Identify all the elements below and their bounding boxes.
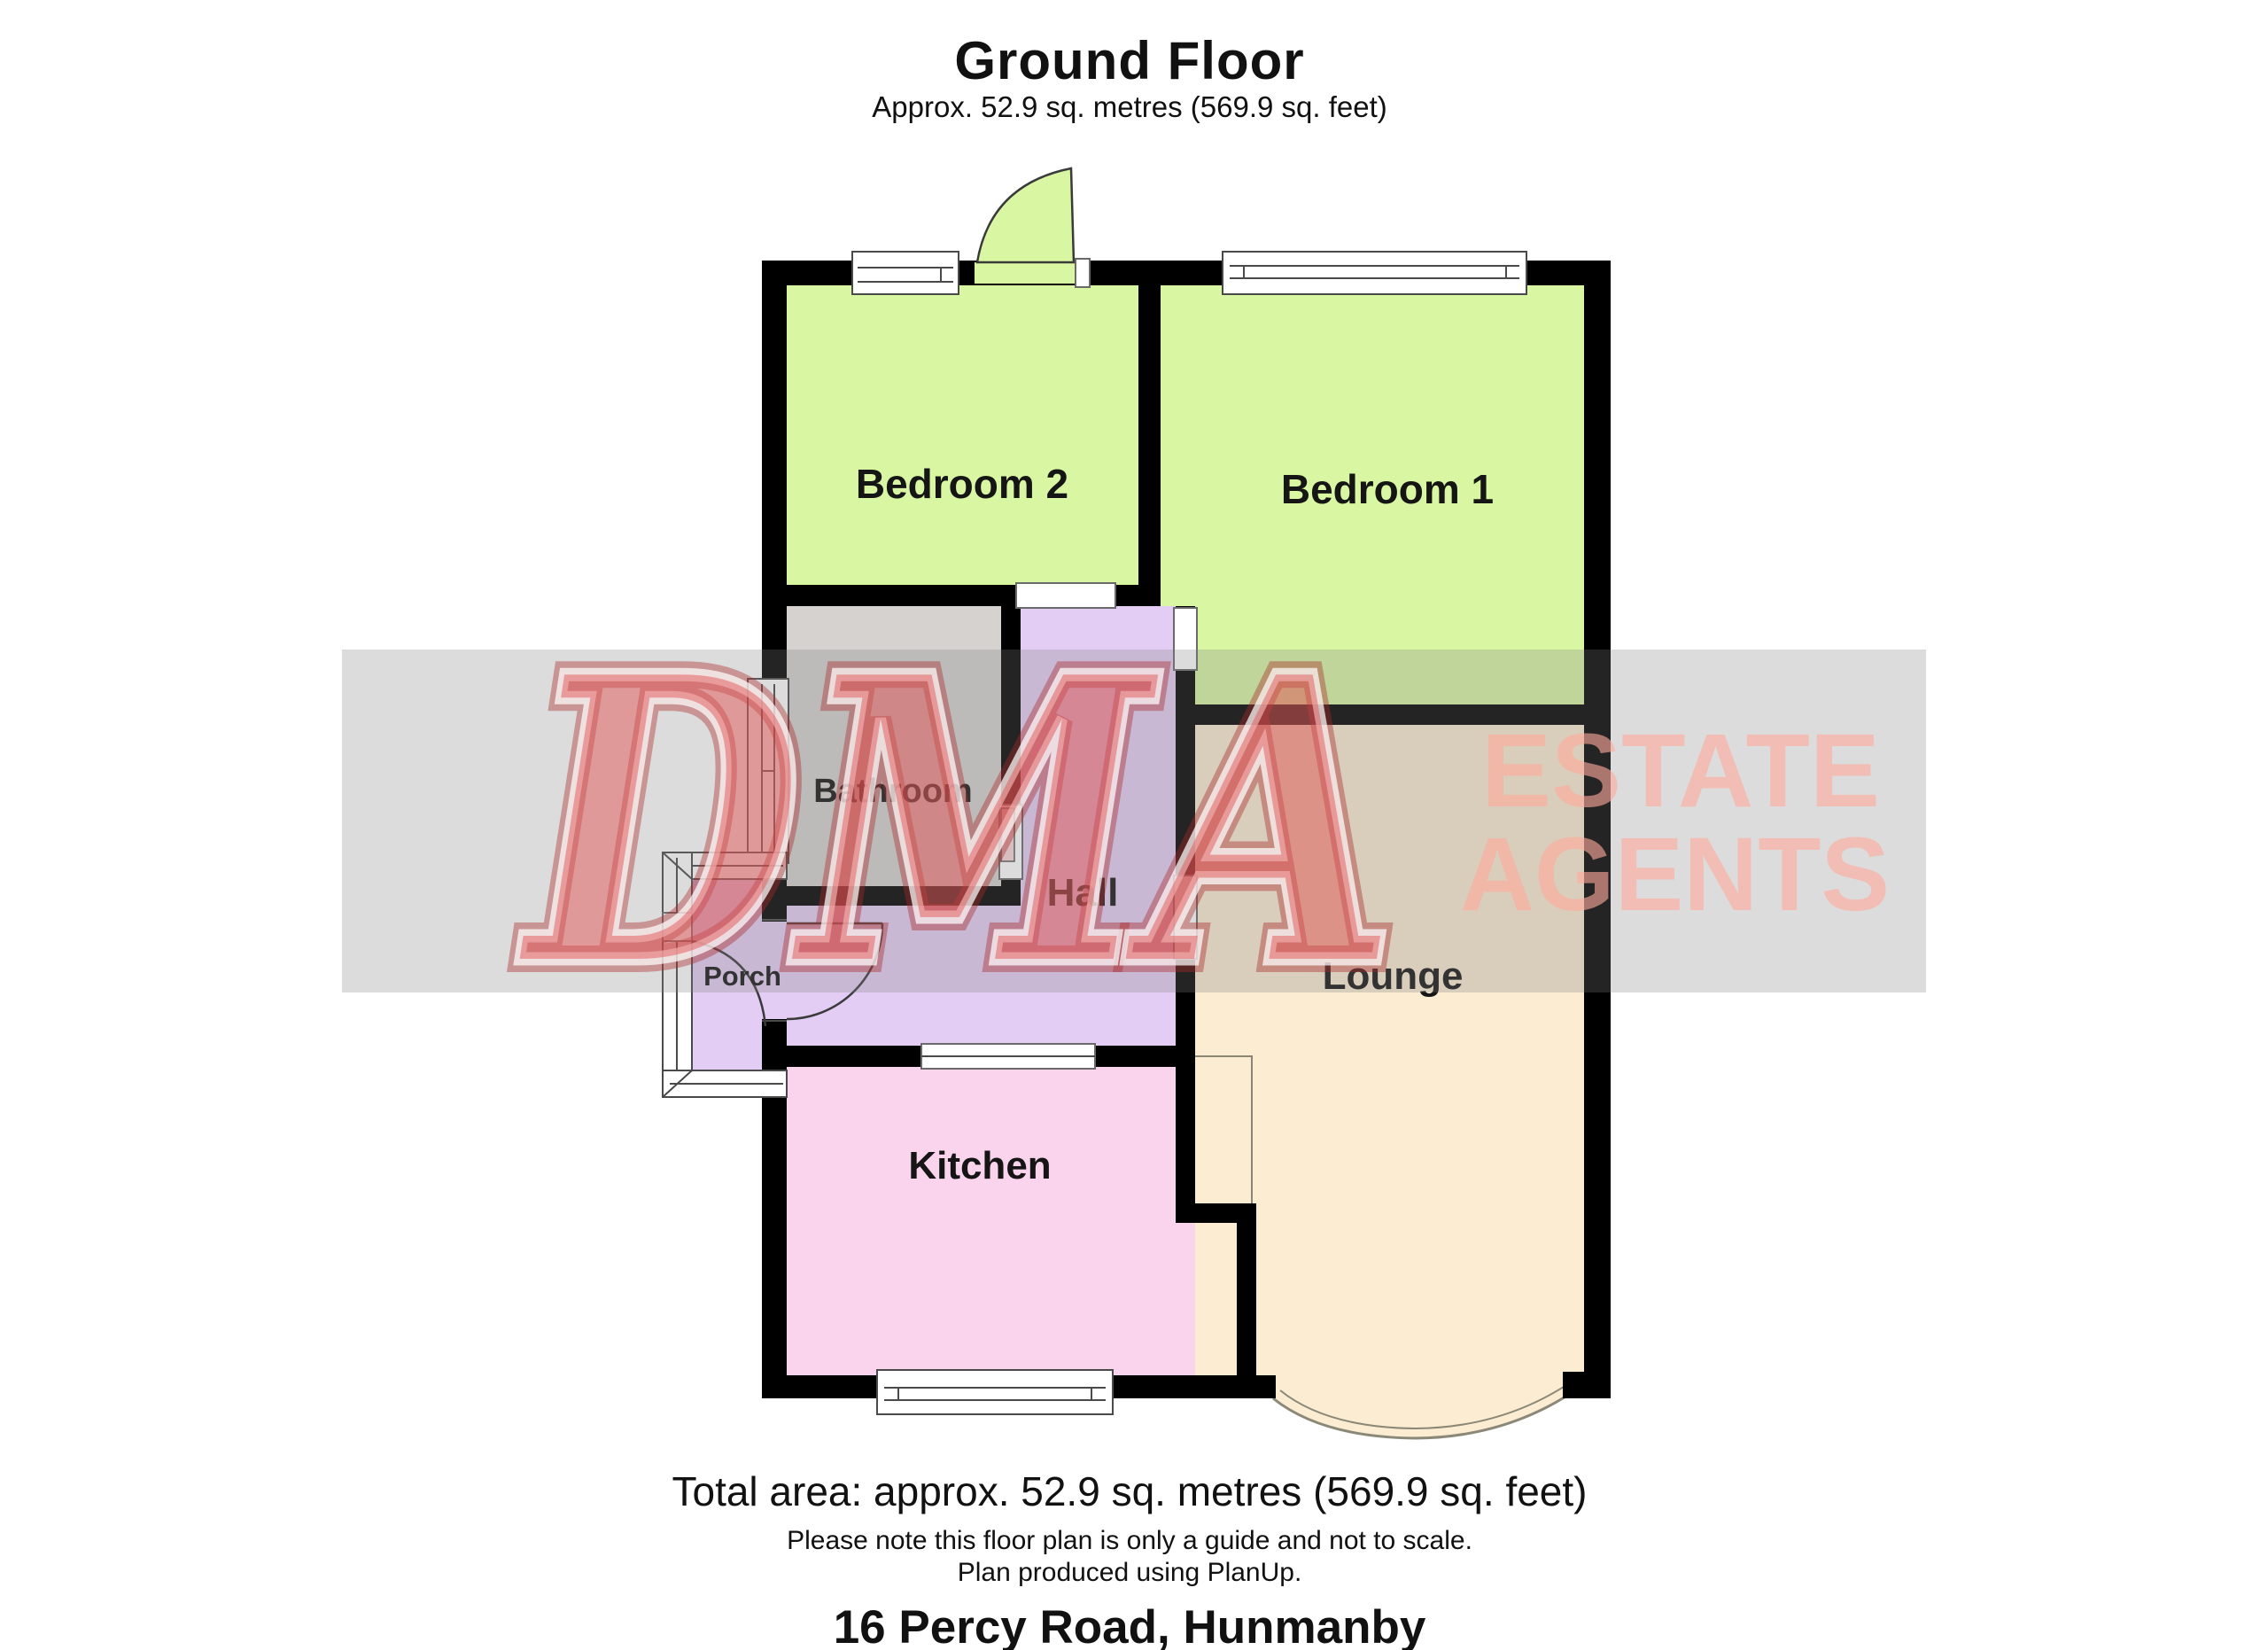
wall-kitchen-lounge <box>1176 1067 1195 1223</box>
wall-kitchen-step-v <box>1237 1223 1256 1398</box>
watermark-estate: ESTATE <box>1481 712 1880 829</box>
top-door-jamb <box>1076 259 1090 287</box>
label-bedroom2: Bedroom 2 <box>856 461 1068 507</box>
floorplan-page: Ground Floor Approx. 52.9 sq. metres (56… <box>0 0 2268 1650</box>
top-door-threshold <box>975 262 1076 284</box>
total-area-text: Total area: approx. 52.9 sq. metres (569… <box>0 1467 2259 1515</box>
top-door-swing <box>977 168 1074 262</box>
room-bedroom2 <box>785 271 1161 606</box>
watermark-agents: AGENTS <box>1460 816 1890 933</box>
watermark-dma: DMA <box>517 593 1395 1051</box>
watermark: DMA DMA ESTATE AGENTS <box>342 593 1926 1051</box>
wall-bedroom-divider <box>1138 271 1161 606</box>
window-bedroom2 <box>852 252 959 294</box>
window-kitchen <box>877 1370 1113 1414</box>
window-bedroom1 <box>1223 252 1526 294</box>
wall-kitchen-step-h <box>1176 1203 1256 1223</box>
disclaimer-text: Please note this floor plan is only a gu… <box>0 1526 2259 1556</box>
floorplan-drawing: Bedroom 2 Bedroom 1 Bathroom Hall Porch … <box>0 0 2268 1650</box>
planup-credit-text: Plan produced using PlanUp. <box>0 1558 2259 1588</box>
wall-right-bay-step <box>1563 1372 1584 1398</box>
property-address: 16 Percy Road, Hunmanby <box>0 1600 2259 1650</box>
label-bedroom1: Bedroom 1 <box>1281 466 1494 512</box>
label-kitchen: Kitchen <box>908 1144 1051 1187</box>
top-door <box>975 168 1090 287</box>
